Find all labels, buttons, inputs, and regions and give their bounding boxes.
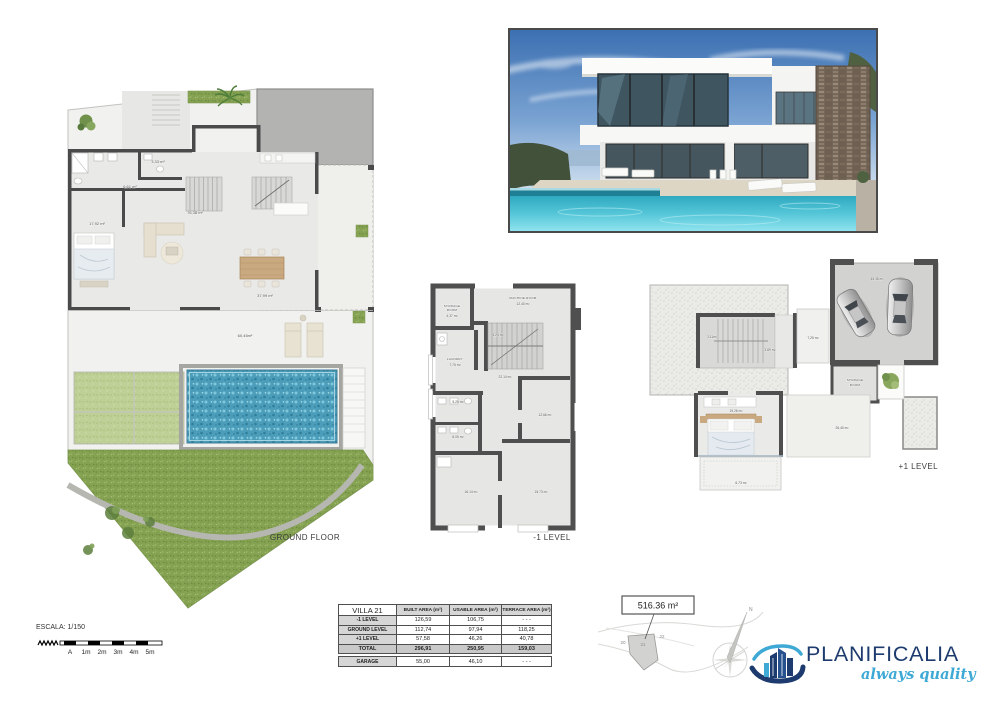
pool xyxy=(181,366,341,449)
p1-bedroom xyxy=(694,391,783,457)
gf-terrace-area: 37,99 m² xyxy=(257,293,273,298)
scale-tick: 1m xyxy=(81,649,90,655)
m1-bedroom-left-area: 16,14 m² xyxy=(464,490,478,494)
plot-number: 21 xyxy=(640,642,646,647)
hedge xyxy=(188,91,250,103)
scale-graphic: A 1m 2m 3m 4m 5m xyxy=(36,631,176,655)
pool-steps xyxy=(343,368,365,448)
plus1-label: +1 LEVEL xyxy=(858,462,938,471)
table-row: -1 LEVEL 126,59 106,75 - - - xyxy=(339,616,552,626)
cell-built: 57,58 xyxy=(397,635,450,645)
garage-car-right xyxy=(885,277,915,338)
m1-hall-area: 22,14 m² xyxy=(498,375,512,379)
logo: PLANIFICALIA always quality xyxy=(748,628,982,690)
p1-balcony-area: 6,73 m² xyxy=(735,481,747,485)
gf-bedroom-area: 17,92 m² xyxy=(89,221,105,226)
m1-machine-name: MACHINE ROOM xyxy=(509,296,536,300)
building xyxy=(580,58,870,184)
cell-terrace: 40,78 xyxy=(502,635,552,645)
site-plot-21 xyxy=(628,634,658,670)
m1-bedroom-right-area: 12,66 m² xyxy=(538,413,552,417)
entry-steps xyxy=(122,91,190,149)
scale-tick: 2m xyxy=(97,649,106,655)
p1-gravel-patch xyxy=(903,397,937,449)
cell-usable: 106,75 xyxy=(450,616,502,626)
table-row: +1 LEVEL 57,58 46,26 40,78 xyxy=(339,635,552,645)
logo-mark xyxy=(748,630,806,688)
row-label: -1 LEVEL xyxy=(339,616,397,626)
gf-living-area: 76,38 m² xyxy=(187,210,203,215)
gf-wc-area: 3,33 m² xyxy=(151,159,165,164)
cell-usable: 46,10 xyxy=(450,657,502,667)
site-area-label: 516.36 m² xyxy=(638,601,679,611)
plan-sheet: 3,33 m² 6,61 m² 76,38 m² 17,92 m² 37,99 … xyxy=(0,0,1000,707)
table-total-row: TOTAL 296,91 250,95 159,03 xyxy=(339,644,552,654)
col-terrace: TERRACE AREA (m²) xyxy=(502,605,552,616)
plot-number: 20 xyxy=(620,640,626,645)
col-built: BUILT AREA (m²) xyxy=(397,605,450,616)
p1-garage-area: 45,35 m² xyxy=(870,277,884,281)
m1-exterior-block xyxy=(573,308,581,330)
m1-outer-wall xyxy=(433,286,573,528)
cell-terrace: 118,25 xyxy=(502,625,552,635)
logo-brand: PLANIFICALIA xyxy=(806,642,959,667)
logo-tagline: always quality xyxy=(861,666,976,683)
m1-bath2-area: 6,05 m² xyxy=(452,435,464,439)
table-row: GROUND LEVEL 112,74 97,94 118,25 xyxy=(339,625,552,635)
p1-storage-name1: STORAGE xyxy=(847,378,863,382)
col-usable: USABLE AREA (m²) xyxy=(450,605,502,616)
plot-number: 22 xyxy=(659,634,665,639)
table-garage-row: GARAGE 55,00 46,10 - - - xyxy=(339,657,552,667)
p1-hall xyxy=(775,315,793,368)
minus1-label: -1 LEVEL xyxy=(517,533,587,542)
p1-terrace xyxy=(787,395,870,457)
m1-bath1-area: 5,25 m² xyxy=(452,400,464,404)
garage-table: GARAGE 55,00 46,10 - - - xyxy=(338,656,552,667)
upper-lawn xyxy=(74,372,184,444)
m1-bedroom-bottom-area: 15,73 m² xyxy=(534,490,548,494)
m1-stairs-area: 4,24 m² xyxy=(492,333,504,337)
scale-tick: 3m xyxy=(113,649,122,655)
scale-tick: 4m xyxy=(129,649,138,655)
scale-tick: A xyxy=(68,649,73,655)
p1-plant xyxy=(878,365,904,399)
p1-small-terrace-area: 7,25 m² xyxy=(807,336,819,340)
gf-bed xyxy=(74,233,114,287)
garden xyxy=(68,450,373,608)
cell-terrace: 159,03 xyxy=(502,644,552,654)
m1-stairs xyxy=(488,323,543,369)
cell-built: 126,59 xyxy=(397,616,450,626)
gf-garden-terrace-area: 60,45m² xyxy=(238,333,253,338)
cell-usable: 46,26 xyxy=(450,635,502,645)
scale-tick: 5m xyxy=(145,649,154,655)
row-label: GARAGE xyxy=(339,657,397,667)
m1-laundry-name: LAUNDRY xyxy=(447,357,463,361)
m1-machine-area: 12,40 m² xyxy=(516,302,530,306)
p1-stairs-area: 3,11m² xyxy=(707,335,718,339)
villa-photo xyxy=(508,28,878,233)
p1-bedroom-area: 19,26 m² xyxy=(729,409,743,413)
cell-built: 55,00 xyxy=(397,657,450,667)
compass-north-label: N xyxy=(749,607,753,613)
ground-floor-label: GROUND FLOOR xyxy=(250,533,360,542)
p1-terrace-area: 26,40 m² xyxy=(835,426,849,430)
scale-label: ESCALA: 1/150 xyxy=(36,624,176,631)
cell-usable: 250,95 xyxy=(450,644,502,654)
cell-terrace: - - - xyxy=(502,657,552,667)
dining-table xyxy=(240,249,284,287)
gf-hall-area: 6,61 m² xyxy=(123,184,137,189)
planter xyxy=(353,311,365,323)
p1-storage-name2: ROOM xyxy=(850,383,861,387)
area-table: VILLA 21 BUILT AREA (m²) USABLE AREA (m²… xyxy=(338,604,552,654)
cell-usable: 97,94 xyxy=(450,625,502,635)
p1-garage xyxy=(830,259,938,365)
row-label: +1 LEVEL xyxy=(339,635,397,645)
cell-terrace: - - - xyxy=(502,616,552,626)
minus1-plan: STORAGE ROOM 4,37 m² MACHINE ROOM 12,40 … xyxy=(428,281,582,533)
table-title: VILLA 21 xyxy=(339,605,397,616)
stone-wall xyxy=(816,66,870,184)
p1-balcony xyxy=(700,457,781,490)
p1-stairs xyxy=(696,313,775,368)
logo-buildings xyxy=(764,648,793,678)
cell-built: 296,91 xyxy=(397,644,450,654)
row-label: TOTAL xyxy=(339,644,397,654)
m1-laundry-area: 7,75 m² xyxy=(449,363,461,367)
m1-storage-name2: ROOM xyxy=(447,308,458,312)
row-label: GROUND LEVEL xyxy=(339,625,397,635)
p1-hall-area: 3,89 m² xyxy=(764,348,776,352)
m1-storage-area: 4,37 m² xyxy=(446,314,458,318)
planter xyxy=(356,225,368,237)
scale-bar: ESCALA: 1/150 A 1m 2m 3m 4m 5m xyxy=(36,624,176,658)
photo-pool xyxy=(510,196,876,231)
cell-built: 112,74 xyxy=(397,625,450,635)
villa-render xyxy=(510,30,876,231)
planter-wall xyxy=(856,180,876,231)
